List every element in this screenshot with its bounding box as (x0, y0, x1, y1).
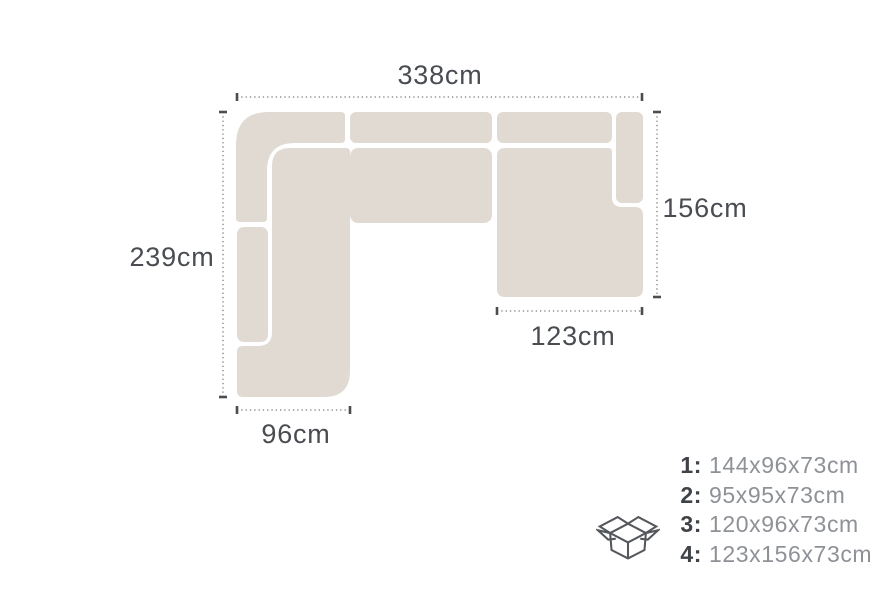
package-size-item: 1: 144x96x73cm (678, 452, 872, 482)
package-number: 1: (678, 452, 702, 479)
package-number: 2: (678, 482, 702, 509)
package-size-item: 4: 123x156x73cm (678, 541, 872, 571)
package-size: 120x96x73cm (709, 511, 859, 538)
package-size-list: 1: 144x96x73cm 2: 95x95x73cm 3: 120x96x7… (678, 452, 872, 570)
package-number: 4: (678, 541, 702, 568)
package-size: 123x156x73cm (709, 541, 872, 568)
sofa-left-backrest (237, 227, 268, 342)
sofa-middle-back-cushion (350, 112, 492, 143)
sofa-pieces (236, 112, 643, 397)
dim-label-left-depth: 239cm (129, 242, 214, 272)
packaging-legend: 1: 144x96x73cm 2: 95x95x73cm 3: 120x96x7… (596, 452, 872, 570)
sofa-right-backrest (616, 112, 643, 203)
open-box-icon (596, 504, 660, 564)
dim-label-total-width: 338cm (397, 60, 482, 90)
dim-label-right-depth: 156cm (662, 193, 747, 223)
sofa-middle-seat (350, 148, 492, 223)
dim-label-left-chaise-width: 96cm (261, 419, 330, 449)
package-number: 3: (678, 511, 702, 538)
package-size: 95x95x73cm (709, 482, 845, 509)
package-size-item: 3: 120x96x73cm (678, 511, 872, 541)
package-size: 144x96x73cm (709, 452, 859, 479)
sofa-right-back-cushion (497, 112, 612, 143)
dim-label-right-chaise-width: 123cm (530, 321, 615, 351)
package-size-item: 2: 95x95x73cm (678, 482, 872, 512)
sofa-dimension-diagram: 338cm 239cm 156cm 123cm 96cm 1: 144x96x7… (0, 0, 880, 600)
